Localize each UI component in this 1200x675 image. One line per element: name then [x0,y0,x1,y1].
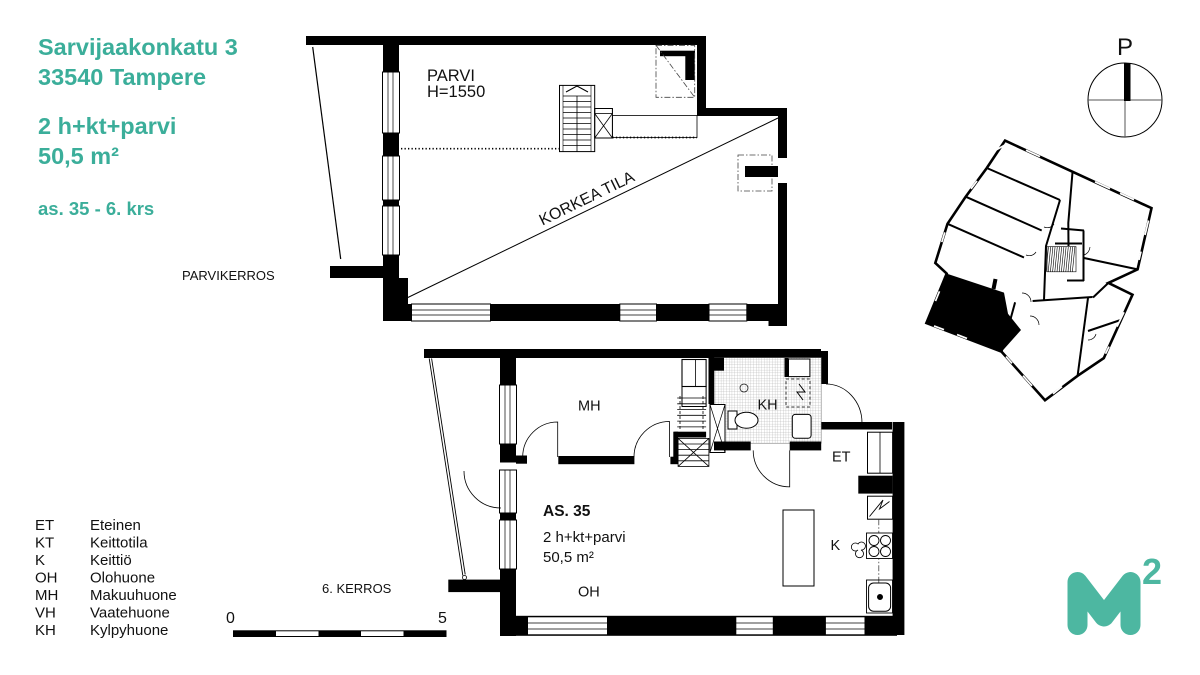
svg-text:VH: VH [35,605,56,622]
svg-text:KH: KH [35,622,56,639]
svg-text:Keittiö: Keittiö [90,552,132,569]
svg-text:50,5 m²: 50,5 m² [543,549,594,566]
svg-text:OH: OH [578,585,600,601]
svg-text:Makuuhuone: Makuuhuone [90,587,177,604]
svg-text:Sarvijaakonkatu 3: Sarvijaakonkatu 3 [38,34,238,60]
svg-text:2 h+kt+parvi: 2 h+kt+parvi [543,529,626,546]
svg-text:Keittotila: Keittotila [90,535,148,552]
svg-text:Kylpyhuone: Kylpyhuone [90,622,168,639]
svg-text:H=1550: H=1550 [427,83,485,101]
svg-text:Eteinen: Eteinen [90,517,141,534]
svg-text:Vaatehuone: Vaatehuone [90,605,170,622]
svg-text:ET: ET [35,517,54,534]
svg-text:Olohuone: Olohuone [90,570,155,587]
svg-text:MH: MH [578,399,601,415]
svg-text:5: 5 [438,610,447,627]
svg-text:PARVIKERROS: PARVIKERROS [182,268,275,283]
svg-text:MH: MH [35,587,58,604]
svg-text:AS. 35: AS. 35 [543,503,591,520]
svg-text:ET: ET [832,450,851,466]
svg-text:0: 0 [226,610,235,627]
svg-text:KH: KH [758,398,778,414]
svg-text:K: K [831,538,841,554]
svg-text:as. 35 - 6. krs: as. 35 - 6. krs [38,198,154,219]
svg-text:P: P [1117,34,1133,61]
svg-text:2 h+kt+parvi: 2 h+kt+parvi [38,113,176,139]
svg-text:KT: KT [35,535,54,552]
svg-text:K: K [35,552,45,569]
svg-text:2: 2 [1142,551,1162,592]
svg-text:OH: OH [35,570,58,587]
svg-text:50,5 m²: 50,5 m² [38,143,119,169]
svg-text:6. KERROS: 6. KERROS [322,581,392,596]
svg-text:33540 Tampere: 33540 Tampere [38,64,206,90]
